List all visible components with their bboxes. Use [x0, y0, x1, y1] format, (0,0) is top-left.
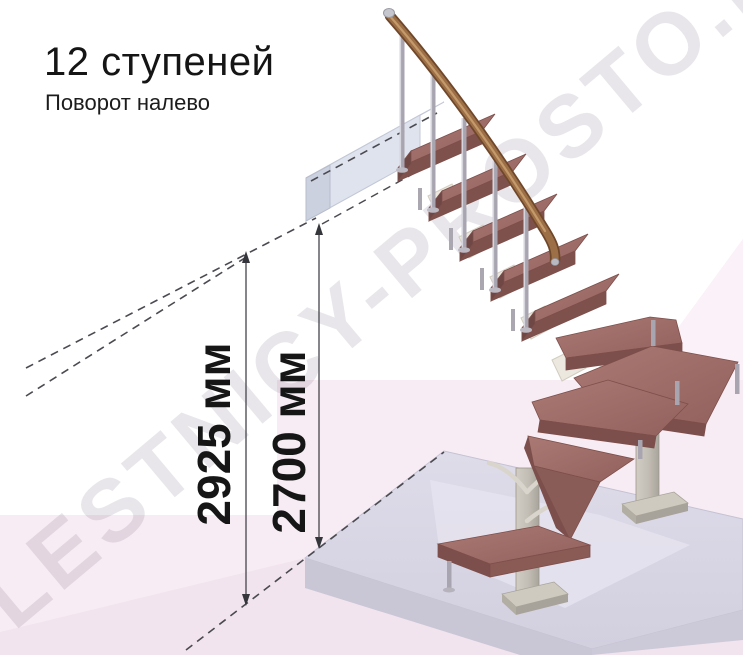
- upper-extension-dashed-line: [26, 218, 316, 368]
- tread: [429, 154, 526, 221]
- tread: [491, 234, 588, 301]
- dimension-overall-height: 2925 мм: [188, 251, 250, 606]
- page-subtitle: Поворот налево: [45, 90, 210, 116]
- handrail-end-ferrule: [551, 259, 559, 266]
- dimension-label-2700: 2700 мм: [263, 350, 315, 533]
- page-title: 12 ступеней: [44, 40, 274, 85]
- arrow-up-icon: [242, 251, 250, 263]
- handrail-top-cap: [384, 9, 395, 18]
- arrow-up-icon: [315, 223, 323, 235]
- arrow-down-icon: [242, 594, 250, 606]
- dimension-floor-to-landing: 2700 мм: [263, 223, 323, 549]
- dimension-label-2925: 2925 мм: [188, 342, 240, 525]
- staircase-diagram: LESTNICY-PROSTO.RU: [0, 0, 743, 655]
